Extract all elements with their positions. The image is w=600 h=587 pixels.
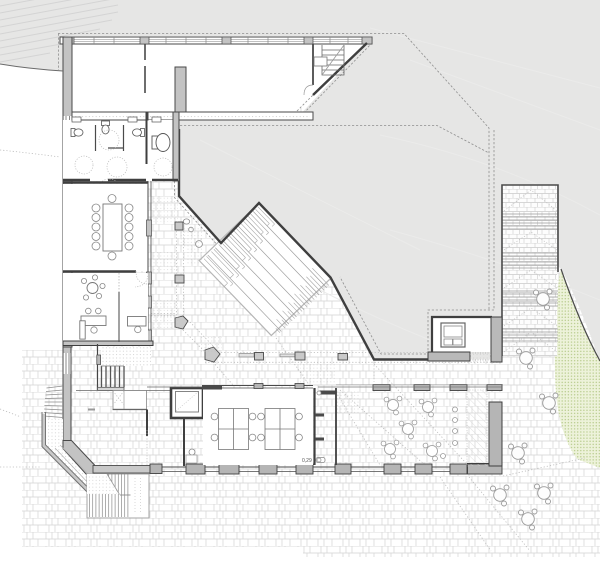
svg-text:0,29: 0,29 [302,458,312,464]
